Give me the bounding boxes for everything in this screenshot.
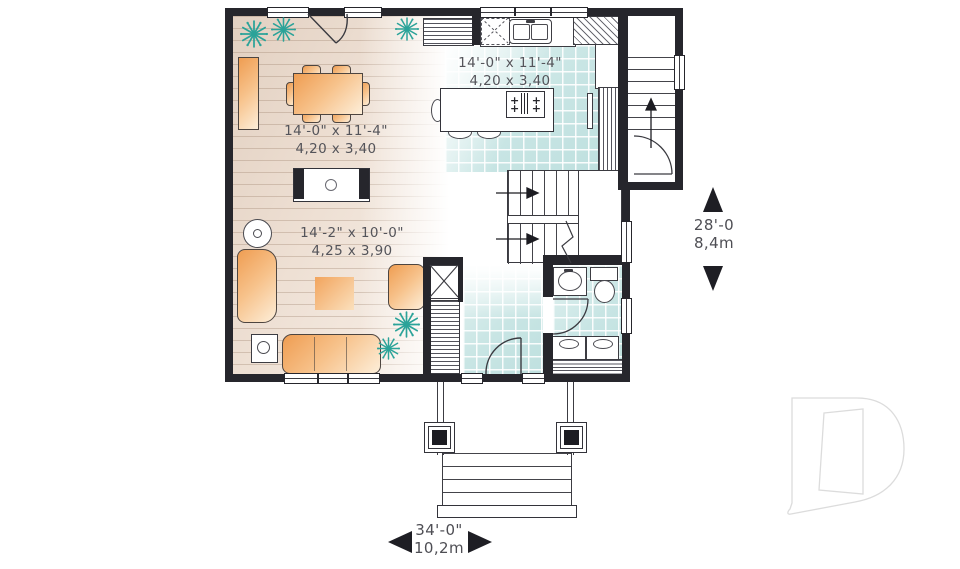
entry-tile-fade	[463, 265, 543, 374]
window	[348, 373, 380, 384]
corner-counter	[573, 16, 620, 45]
floor-plan: + + + +	[0, 0, 960, 569]
width-imperial: 34'-0"	[408, 521, 470, 539]
window-mullion	[514, 7, 516, 16]
wall	[618, 182, 683, 190]
dim-arrow-up-icon	[703, 187, 723, 212]
builder-logo	[783, 393, 908, 518]
burner-icon: +	[510, 103, 519, 114]
dining-room-label: 14'-0" x 11'-4" 4,20 x 3,40	[272, 122, 400, 158]
door-sidelight	[461, 373, 483, 384]
refrigerator	[595, 44, 620, 89]
washer-lid	[559, 339, 579, 349]
porch-pillar-core	[564, 430, 579, 445]
window	[318, 373, 348, 384]
depth-metric: 8,4m	[684, 234, 744, 252]
window	[344, 7, 382, 18]
logo-d-glyph	[788, 398, 904, 514]
wall	[618, 16, 628, 182]
width-metric: 10,2m	[408, 539, 470, 557]
dryer-lid	[593, 339, 613, 349]
stair-landing-edge	[578, 171, 579, 264]
kitchen-sink	[509, 19, 552, 44]
dim-arrow-right-icon	[468, 531, 492, 553]
dishwasher	[481, 18, 510, 45]
wall	[472, 8, 480, 45]
porch-step-base	[437, 505, 577, 518]
buffet-counter	[423, 18, 474, 46]
dim-arrow-down-icon	[703, 266, 723, 291]
stair-flight-upper	[508, 171, 578, 215]
wall	[423, 257, 431, 382]
sink-basin-left	[513, 24, 530, 40]
coat-closet	[430, 300, 460, 374]
wall	[458, 257, 463, 302]
dining-room-size-imperial: 14'-0" x 11'-4"	[272, 122, 400, 140]
toilet-tank	[590, 267, 618, 281]
toilet-bowl	[594, 280, 615, 303]
width-dimension: 34'-0" 10,2m	[408, 521, 470, 557]
rear-staircase	[628, 57, 675, 141]
window	[674, 55, 685, 90]
dining-table	[293, 73, 363, 115]
square-side-table-lamp	[257, 341, 270, 354]
dryer	[586, 336, 619, 360]
round-side-table-center	[253, 229, 262, 238]
kitchen-size-metric: 4,20 x 3,40	[445, 72, 575, 90]
wall	[423, 257, 463, 265]
right-counter	[598, 87, 620, 173]
stair-stringer	[508, 215, 578, 224]
fireplace-vent	[325, 179, 337, 191]
sofa	[282, 334, 381, 374]
window	[284, 373, 318, 384]
sink-faucet	[526, 20, 535, 23]
cooktop: + + + +	[506, 91, 545, 118]
dining-room-size-metric: 4,20 x 3,40	[272, 140, 400, 158]
kitchen-label: 14'-0" x 11'-4" 4,20 x 3,40	[445, 54, 575, 90]
armchair	[388, 264, 425, 310]
wall	[675, 8, 683, 190]
porch-steps	[442, 453, 572, 505]
entry-closet	[430, 265, 460, 299]
sofa-cushion-seam	[314, 337, 315, 371]
living-room-label: 14'-2" x 10'-0" 4,25 x 3,90	[278, 224, 426, 260]
living-room-size-metric: 4,25 x 3,90	[278, 242, 426, 260]
sink-basin-right	[531, 24, 548, 40]
porch-pillar-core	[432, 430, 447, 445]
kitchen-window	[480, 7, 588, 18]
window-mullion	[550, 7, 552, 16]
kitchen-size-imperial: 14'-0" x 11'-4"	[445, 54, 575, 72]
door-sidelight	[522, 373, 545, 384]
fireplace-jamb	[359, 169, 369, 199]
porch-pillar-inner	[560, 426, 583, 449]
loveseat	[237, 249, 277, 323]
rear-door	[634, 136, 672, 174]
window	[621, 221, 632, 263]
depth-dimension: 28'-0 8,4m	[684, 216, 744, 252]
coffee-table	[315, 277, 354, 310]
fireplace	[293, 168, 370, 202]
window	[621, 298, 632, 334]
dining-sideboard	[238, 57, 259, 130]
porch-pillar-inner	[428, 426, 451, 449]
washer	[552, 336, 586, 360]
wall	[225, 8, 233, 382]
porch-pillar	[556, 422, 587, 453]
bathroom-faucet	[564, 269, 573, 272]
pantry-door	[587, 93, 593, 129]
sofa-cushion-seam	[346, 337, 347, 371]
wall	[543, 333, 553, 374]
fireplace-jamb	[294, 169, 304, 199]
porch-pillar	[424, 422, 455, 453]
burner-icon: +	[532, 103, 541, 114]
window	[267, 7, 309, 18]
bathroom-sink	[558, 271, 582, 291]
cooktop-center-panel	[521, 93, 530, 114]
depth-imperial: 28'-0	[684, 216, 744, 234]
wall	[543, 265, 553, 297]
main-staircase	[507, 170, 622, 263]
living-room-size-imperial: 14'-2" x 10'-0"	[278, 224, 426, 242]
wall	[543, 255, 628, 265]
wall	[622, 190, 630, 382]
